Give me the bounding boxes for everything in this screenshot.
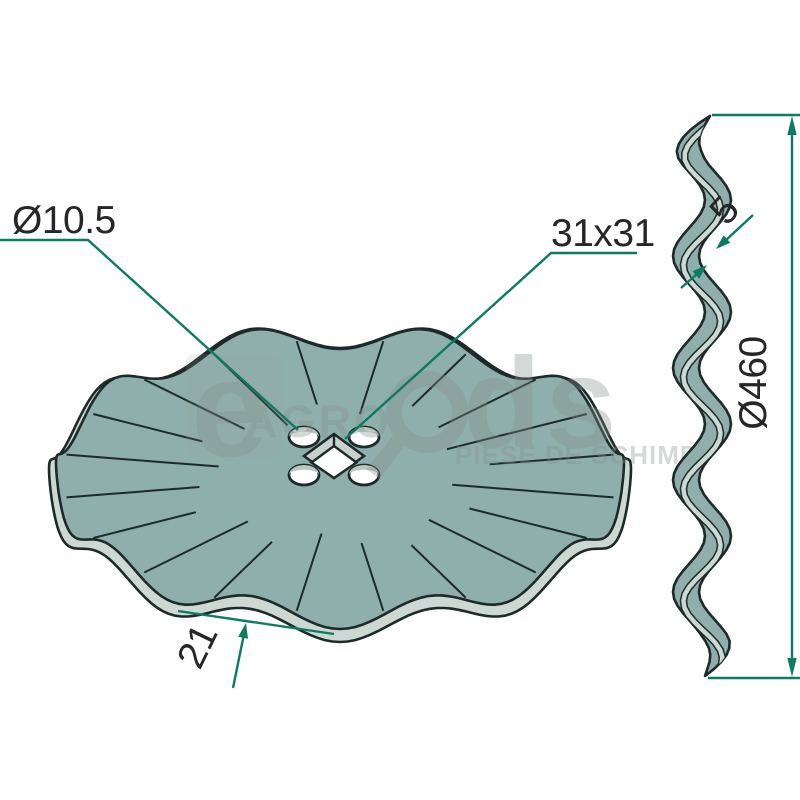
watermark-tagline: PIESE DE SCHIMB	[455, 440, 700, 470]
label-square-bore: 31x31	[551, 212, 655, 255]
label-wave-depth: 21	[169, 618, 226, 675]
diameter-arrowhead-bottom	[787, 658, 796, 677]
coulter-disc-technical-drawing: e AGRO ds PIESE DE SCHIMB Ø10.5 31x31 5	[0, 0, 800, 800]
wave-depth-arrow-line	[233, 634, 244, 688]
wave-depth-arrowhead	[238, 623, 248, 639]
diameter-arrowhead-top	[787, 116, 796, 135]
label-hole-diameter: Ø10.5	[12, 199, 116, 242]
label-disc-diameter: Ø460	[732, 336, 775, 429]
watermark-agro: AGRO	[245, 396, 392, 447]
drawing-canvas: e AGRO ds PIESE DE SCHIMB Ø10.5 31x31 5	[0, 0, 800, 800]
